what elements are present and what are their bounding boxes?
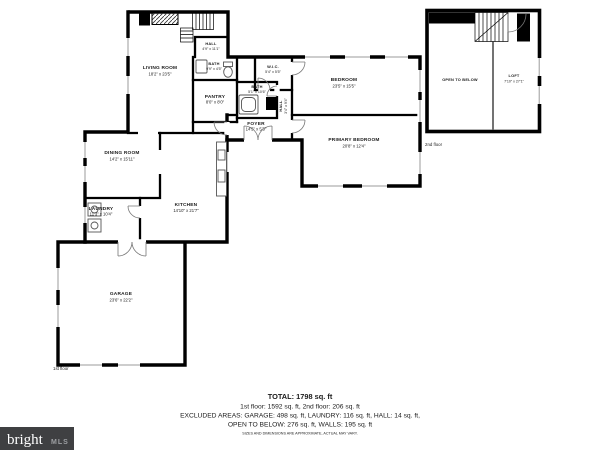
second-floor-tag: 2nd floor [425,142,443,147]
floor-plan-canvas: LIVING ROOM 18'2" x 23'5" HALL 4'9" x 11… [0,0,600,450]
room-dims-laundry: 11'3" x 10'4" [90,212,113,217]
logo-wordmark: bright [7,432,44,448]
second-floor-wall-block [429,13,475,24]
stove-icon [218,170,225,182]
room-label-bath-2: BATH [251,84,262,89]
room-dims-bedroom: 23'5" x 15'5" [333,84,356,89]
windows [58,38,420,365]
second-floor-staircase-icon [475,13,508,42]
room-dims-dining-room: 14'2" x 15'11" [110,157,135,162]
room-label-living-room: LIVING ROOM [143,65,177,71]
summary-total: TOTAL: 1798 sq. ft [268,392,333,401]
room-label-bath-1: BATH [208,61,219,66]
room-dims-primary-bedroom: 20'8" x 12'4" [343,144,366,149]
summary-excluded-line2: OPEN TO BELOW: 276 sq. ft, WALLS: 195 sq… [228,422,372,429]
fireplace-icon [152,13,178,25]
second-floor-wall-block [517,14,530,42]
room-dims-garage: 23'6" x 22'2" [110,298,133,303]
doors [118,62,305,256]
room-dims-wic: 5'4" x 5'5" [265,70,281,74]
room-label-hall-upper: HALL [205,41,217,46]
first-floor-tag: 1st floor [53,366,69,371]
room-dims-hall-lower: 3'4" x 9'4" [284,97,288,113]
summary-floors: 1st floor: 1592 sq. ft, 2nd floor: 206 s… [240,404,360,411]
room-dims-loft: 7'10" x 27'1" [504,80,524,84]
room-label-loft: LOFT [509,73,520,78]
room-dims-pantry: 8'0" x 8'0" [206,100,225,105]
room-dims-bath-1: 9'9" x 4'5" [206,67,222,71]
room-label-dining-room: DINING ROOM [104,150,139,156]
fixtures [88,60,258,232]
room-dims-hall-upper: 4'9" x 11'1" [202,47,220,51]
room-dims-bath-2: 5'1" x 10'6" [248,90,266,94]
floor-plan-page: LIVING ROOM 18'2" x 23'5" HALL 4'9" x 11… [0,0,600,450]
first-floor-plan: LIVING ROOM 18'2" x 23'5" HALL 4'9" x 11… [53,12,420,371]
logo-suffix: MLS [51,439,69,446]
brightmls-logo: bright MLS [0,427,74,450]
toilet-icon [224,67,233,77]
toilet-tank-icon [224,62,233,67]
room-dims-kitchen: 14'10" x 21'7" [173,208,199,213]
room-label-garage: GARAGE [110,291,133,297]
room-label-bedroom: BEDROOM [331,77,357,83]
area-summary: TOTAL: 1798 sq. ft 1st floor: 1592 sq. f… [180,392,420,436]
kitchen-sink-icon [218,150,225,160]
summary-disclaimer: SIZES AND DIMENSIONS ARE APPROXIMATE, AC… [242,432,357,436]
second-floor-room-labels: OPEN TO BELOW LOFT 7'10" x 27'1" [442,73,524,84]
room-dims-living-room: 18'2" x 23'5" [149,72,172,77]
summary-excluded-line1: EXCLUDED AREAS: GARAGE: 498 sq. ft, LAUN… [180,413,420,420]
room-label-wic: W.I.C. [267,64,279,69]
second-floor-plan: OPEN TO BELOW LOFT 7'10" x 27'1" 2nd flo… [425,11,540,148]
room-label-primary-bedroom: PRIMARY BEDROOM [328,137,379,143]
room-label-hall-lower: HALL [278,100,283,112]
room-dims-foyer: 14'5" x 5'3" [246,127,267,132]
room-label-open-to-below: OPEN TO BELOW [442,77,478,82]
